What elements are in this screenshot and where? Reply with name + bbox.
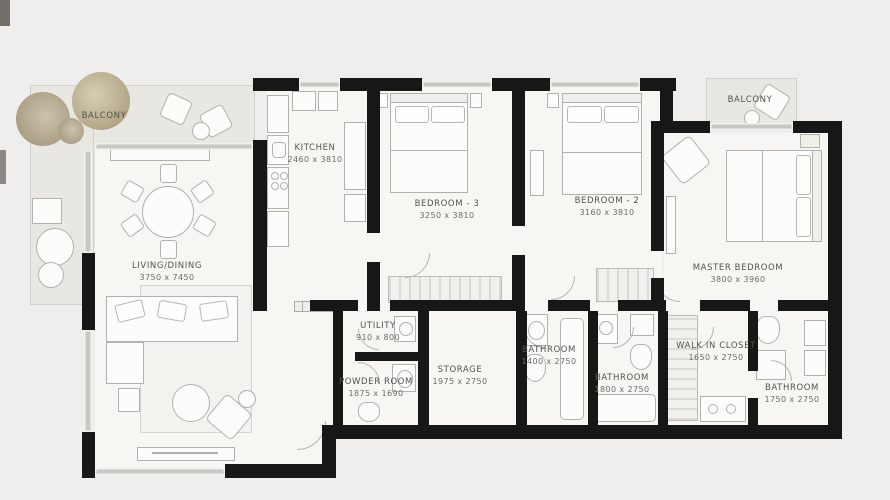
kitchen-counter — [318, 91, 338, 111]
kitchen-counter — [292, 91, 316, 111]
headboard — [562, 93, 642, 103]
side-table — [238, 390, 256, 408]
room-label-master-bedroom: MASTER BEDROOM 3800 x 3960 — [678, 262, 798, 286]
wall — [778, 300, 840, 311]
headboard — [390, 93, 468, 103]
outdoor-table — [192, 122, 210, 140]
window — [550, 81, 640, 88]
blanket-line — [391, 150, 467, 151]
edge-mark — [0, 150, 6, 184]
window — [84, 330, 92, 432]
dining-table — [142, 186, 194, 238]
burner — [271, 172, 279, 180]
wall — [340, 78, 422, 91]
window — [422, 81, 492, 88]
burner — [271, 182, 279, 190]
fridge — [267, 95, 289, 133]
pillow — [395, 106, 429, 123]
wall — [658, 311, 668, 425]
dining-chair — [160, 164, 177, 183]
pillow — [604, 106, 639, 123]
window — [299, 81, 340, 88]
headboard — [812, 150, 822, 242]
bathtub — [560, 318, 584, 420]
dresser — [530, 150, 544, 196]
nightstand — [470, 93, 482, 108]
wall — [663, 121, 710, 133]
nightstand — [547, 93, 559, 108]
window — [710, 123, 793, 130]
blanket-line — [563, 152, 641, 153]
planter-box — [32, 198, 62, 224]
pillow — [431, 106, 465, 123]
room-label-bedroom3: BEDROOM - 3 3250 x 3810 — [387, 198, 507, 222]
wall — [618, 300, 666, 311]
wall — [310, 300, 358, 311]
room-label-kitchen: KITCHEN 2460 x 3810 — [255, 142, 375, 166]
knob — [708, 404, 718, 414]
sofa-cushion — [199, 300, 229, 322]
room-label-living-dining: LIVING/DINING 3750 x 7450 — [107, 260, 227, 284]
room-label-powder-room: POWDER ROOM 1875 x 1690 — [316, 376, 436, 400]
sofa-chaise — [106, 342, 144, 384]
room-label-balcony-right: BALCONY — [690, 94, 810, 106]
outdoor-round-table — [36, 228, 74, 266]
floor-plan: BALCONY KITCHEN 2460 x 3810 BEDROOM - 3 … — [0, 0, 890, 500]
wall — [82, 253, 95, 330]
dining-chair — [160, 240, 177, 259]
sink — [804, 320, 826, 346]
room-label-balcony-left: BALCONY — [44, 110, 164, 122]
wall — [512, 78, 525, 226]
kitchen-cabinet — [267, 211, 289, 247]
burner — [280, 182, 288, 190]
wall — [355, 352, 418, 361]
wardrobe — [388, 276, 502, 303]
pillow — [796, 155, 811, 195]
wall — [390, 300, 522, 311]
window — [84, 150, 92, 253]
tv-unit — [666, 196, 676, 254]
room-label-bathroom-middle: BATHROOM 1800 x 2750 — [562, 372, 682, 396]
room-label-bathroom-right: BATHROOM 1750 x 2750 — [732, 382, 852, 406]
toilet — [630, 344, 652, 370]
wardrobe — [596, 268, 654, 302]
window — [95, 143, 253, 150]
wall — [253, 78, 299, 91]
wall — [225, 464, 336, 478]
pillow — [567, 106, 602, 123]
wall — [651, 121, 664, 251]
blanket-line — [762, 151, 763, 241]
wall — [588, 311, 598, 425]
side-table — [118, 388, 140, 412]
window — [95, 468, 225, 475]
room-label-walk-in-closet: WALK IN CLOSET 1650 x 2750 — [656, 340, 776, 364]
edge-mark — [0, 0, 10, 26]
shower-drain — [599, 321, 613, 335]
kitchen-cabinet — [344, 194, 366, 222]
bathtub — [592, 394, 656, 422]
toilet — [358, 402, 380, 422]
sink — [804, 350, 826, 376]
coffee-table — [172, 384, 210, 422]
room-label-utility: UTILITY 910 x 800 — [318, 320, 438, 344]
room-label-bathroom-center: BATHROOM 1400 x 2750 — [489, 344, 609, 368]
pillow — [796, 197, 811, 237]
tv-console — [137, 447, 235, 461]
burner — [280, 172, 288, 180]
outdoor-stool — [38, 262, 64, 288]
wall — [367, 262, 380, 311]
wall — [700, 300, 750, 311]
wall — [82, 432, 95, 478]
plant-box — [800, 134, 820, 148]
tv — [152, 452, 218, 454]
sink — [630, 314, 654, 336]
wall — [548, 300, 590, 311]
wall — [333, 425, 842, 439]
room-label-bedroom2: BEDROOM - 2 3160 x 3810 — [547, 195, 667, 219]
